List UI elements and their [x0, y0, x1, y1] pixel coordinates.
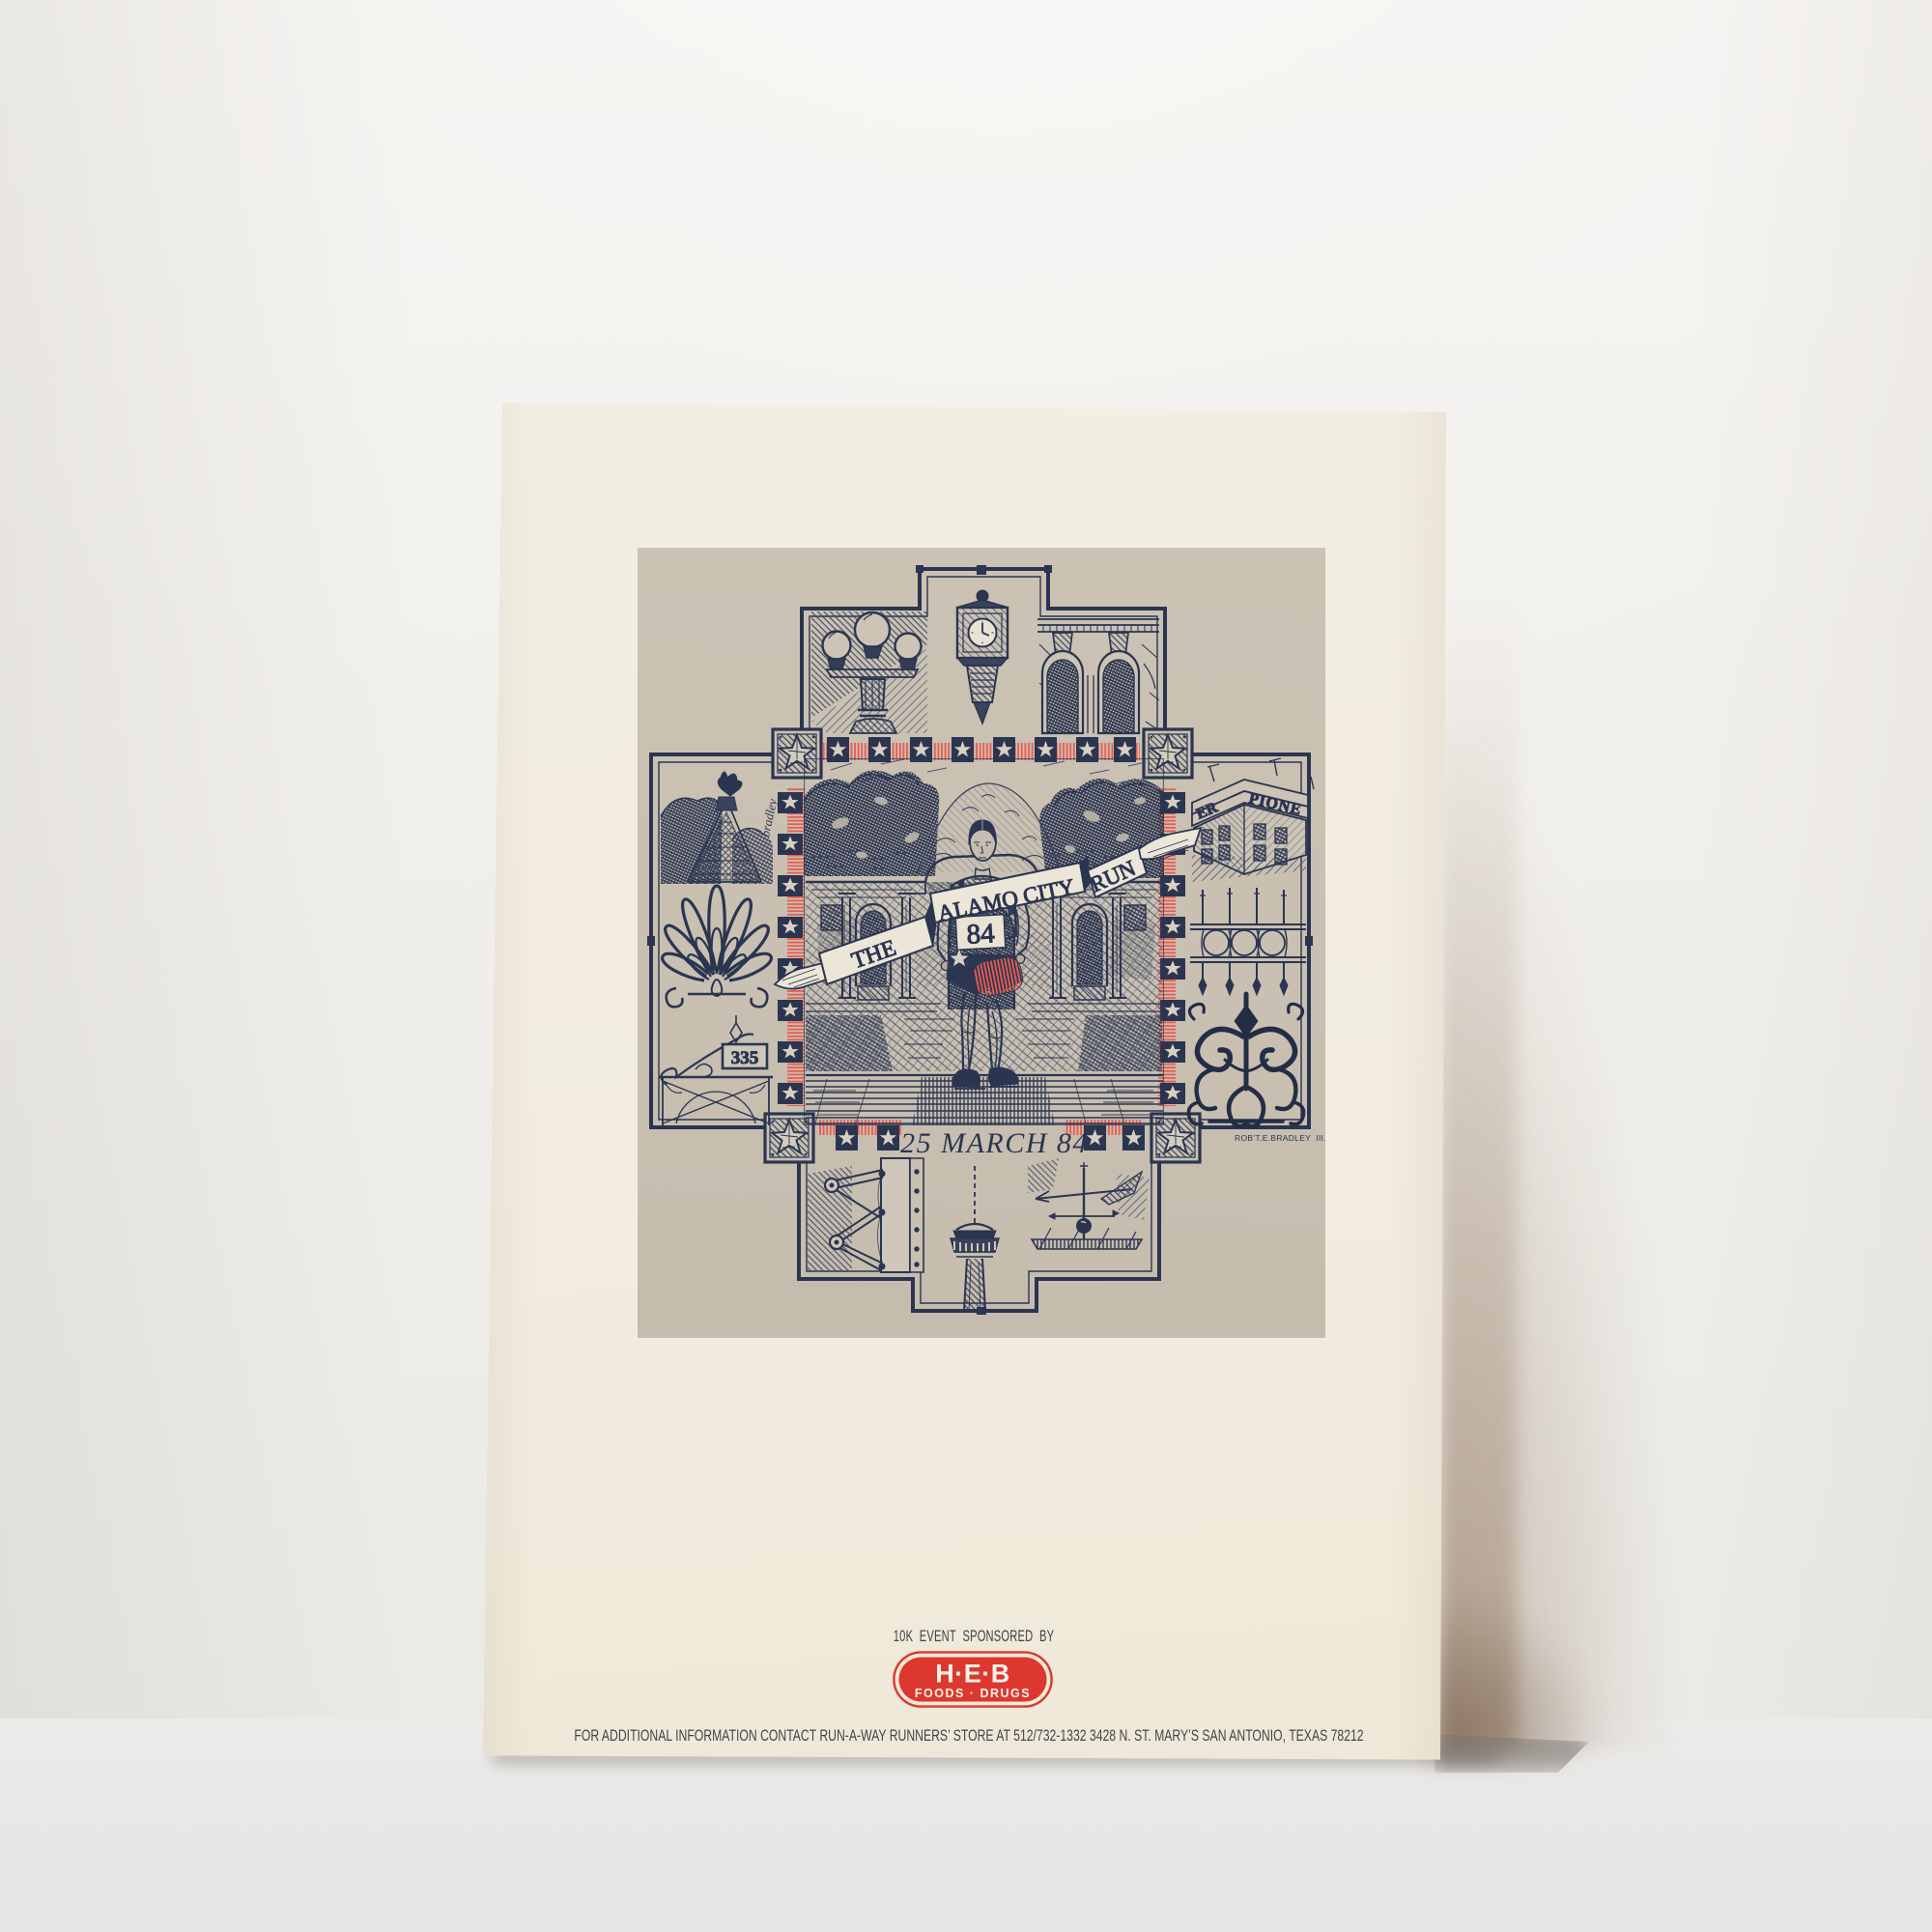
svg-text:84: 84 — [966, 918, 996, 951]
svg-text:FOODS · DRUGS: FOODS · DRUGS — [915, 1687, 1031, 1700]
svg-text:·25 MARCH 84 ·: ·25 MARCH 84 · — [892, 1127, 1106, 1159]
svg-text:bradley: bradley — [757, 797, 780, 838]
svg-text:335: 335 — [731, 1048, 759, 1068]
svg-text:ROB’T.E.BRADLEY III.: ROB’T.E.BRADLEY III. — [1235, 1133, 1325, 1143]
svg-text:H·E·B: H·E·B — [935, 1660, 1010, 1689]
